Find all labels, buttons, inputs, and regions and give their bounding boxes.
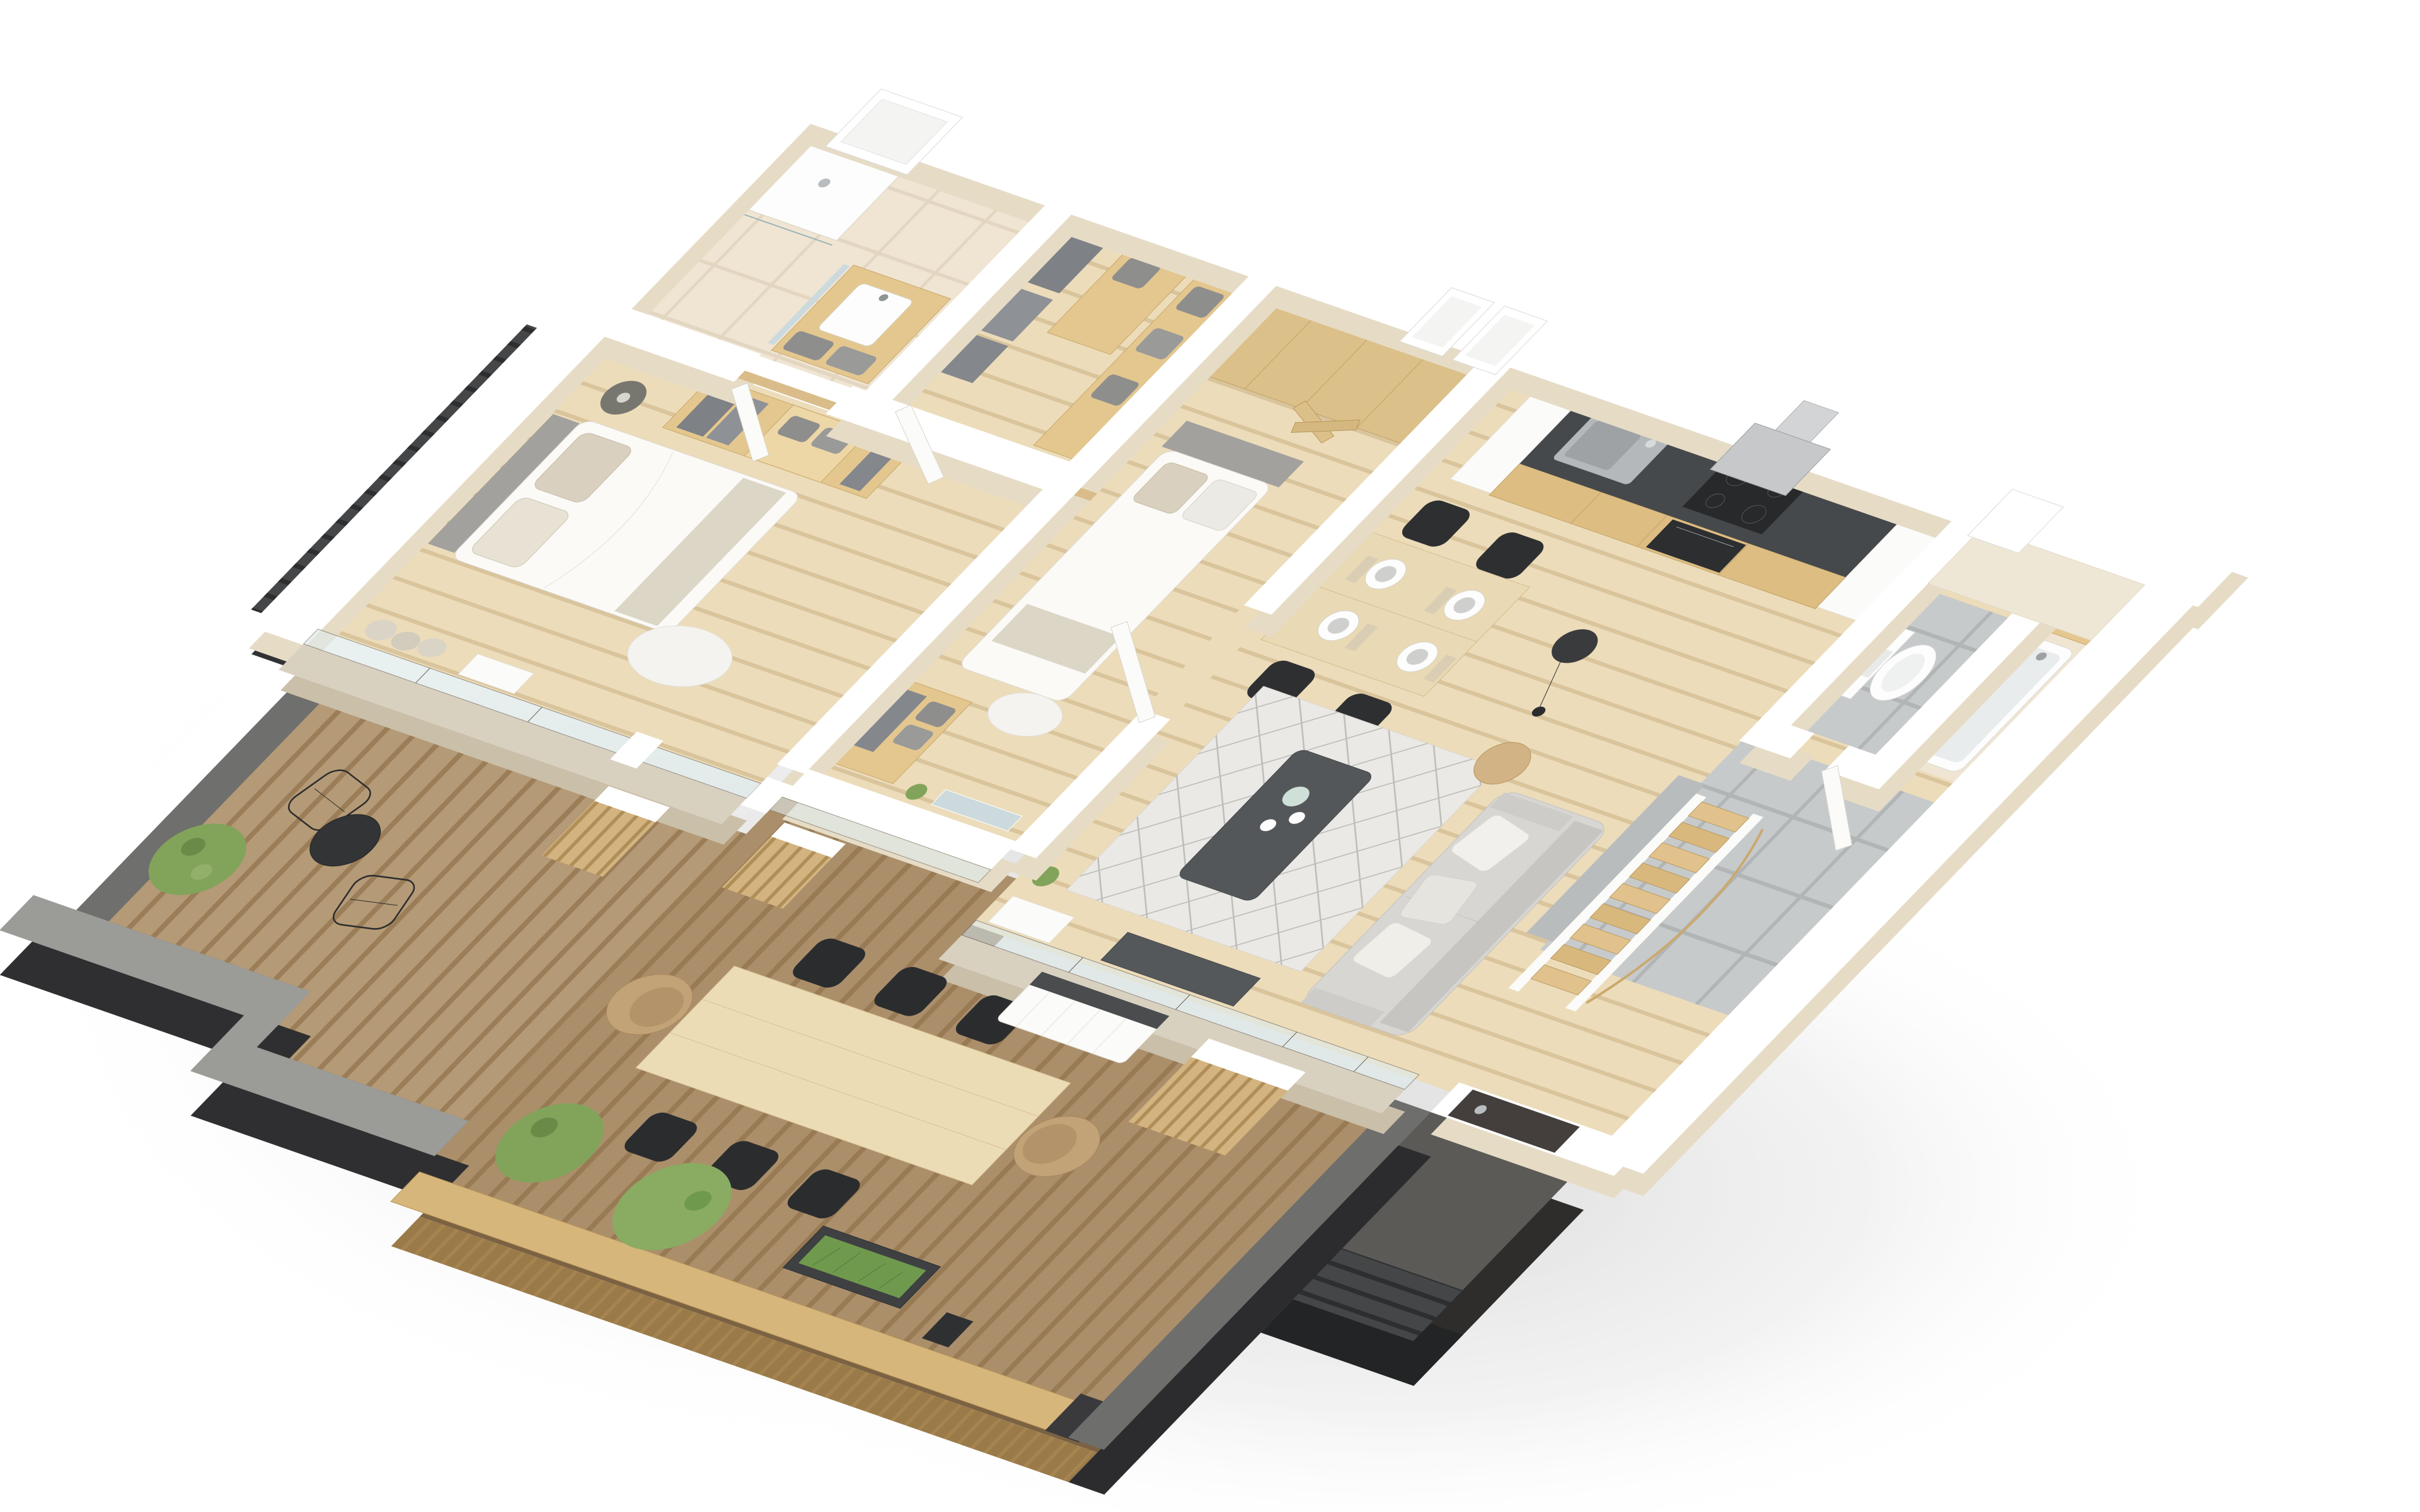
floor-plan-render — [0, 0, 2420, 1512]
floor-plan-stage — [0, 0, 2420, 1512]
